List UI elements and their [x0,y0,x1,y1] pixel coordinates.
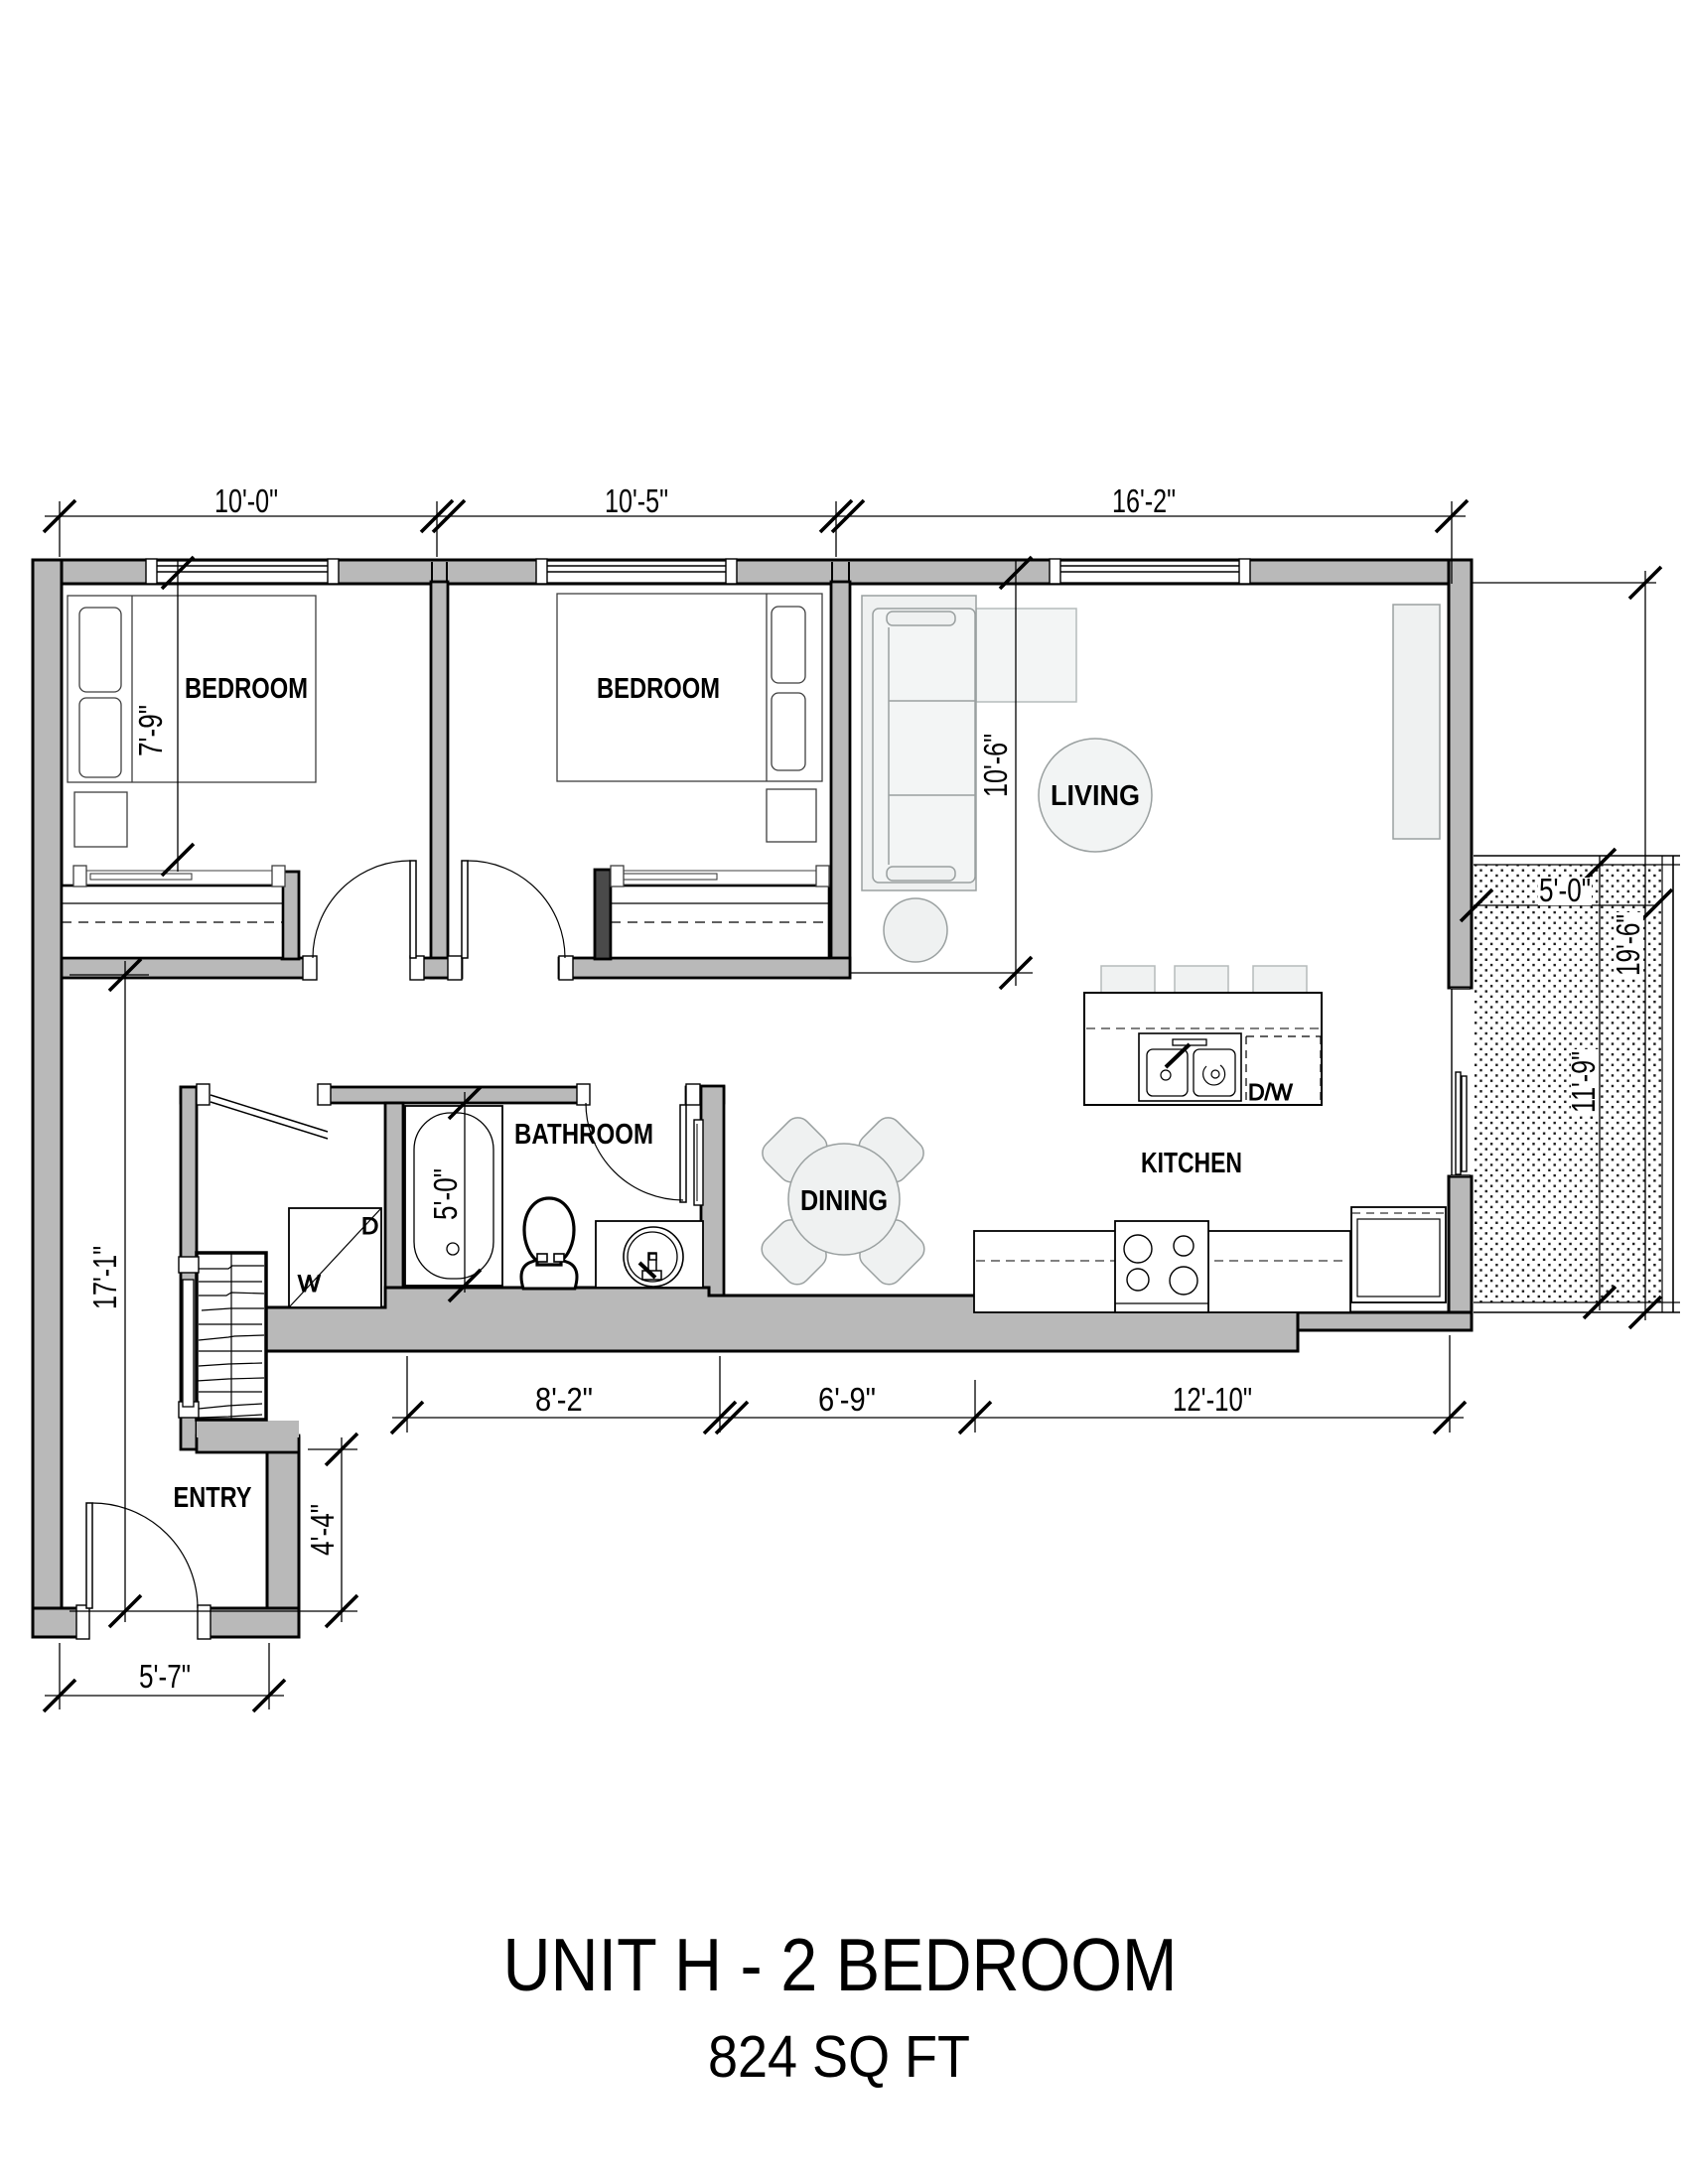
svg-text:DINING: DINING [800,1185,888,1217]
svg-text:11'-9": 11'-9" [1565,1051,1602,1113]
svg-text:5'-0": 5'-0" [1539,872,1591,908]
svg-text:6'-9": 6'-9" [818,1381,876,1418]
svg-text:UNIT H - 2 BEDROOM: UNIT H - 2 BEDROOM [503,1923,1178,2006]
svg-text:BATHROOM: BATHROOM [514,1119,653,1151]
svg-text:10'-0": 10'-0" [214,482,278,519]
svg-text:D: D [361,1213,378,1240]
svg-text:12'-10": 12'-10" [1173,1381,1252,1418]
svg-text:10'-5": 10'-5" [605,482,668,519]
svg-text:BEDROOM: BEDROOM [185,673,308,705]
svg-text:19'-6": 19'-6" [1610,914,1646,976]
svg-text:W: W [298,1271,321,1297]
svg-text:ENTRY: ENTRY [174,1482,252,1514]
svg-text:BEDROOM: BEDROOM [597,673,720,705]
svg-text:16'-2": 16'-2" [1112,482,1176,519]
svg-text:4'-4": 4'-4" [304,1504,341,1556]
svg-text:7'-9": 7'-9" [132,705,169,756]
svg-text:5'-0": 5'-0" [427,1168,464,1220]
svg-text:LIVING: LIVING [1051,780,1140,812]
svg-text:8'-2": 8'-2" [535,1381,593,1418]
svg-text:D/W: D/W [1248,1079,1293,1105]
svg-text:17'-1": 17'-1" [86,1246,123,1309]
svg-text:5'-7": 5'-7" [139,1658,191,1695]
svg-text:KITCHEN: KITCHEN [1141,1148,1242,1179]
svg-text:10'-6": 10'-6" [977,734,1014,797]
svg-text:824 SQ FT: 824 SQ FT [708,2024,970,2090]
